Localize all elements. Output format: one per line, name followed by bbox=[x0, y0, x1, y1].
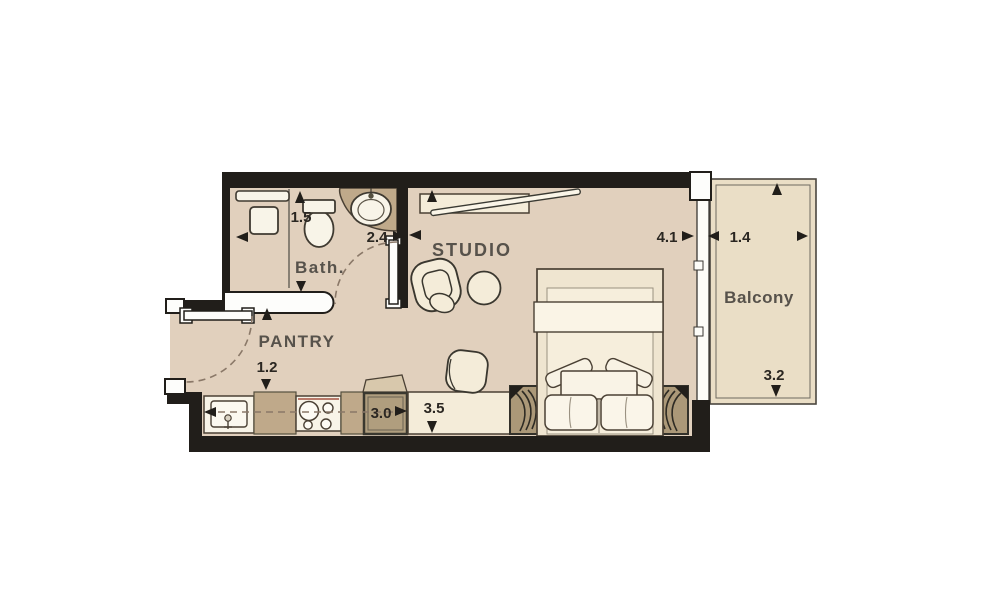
dim-label-bath-width: 2.4 bbox=[367, 229, 389, 246]
floor-plan-page: STUDIO Bath. PANTRY Balcony 1.5 2.4 4.1 … bbox=[0, 0, 1000, 612]
stool bbox=[445, 349, 490, 395]
dim-label-bath-depth: 1.5 bbox=[291, 209, 312, 226]
balcony-post-wall bbox=[692, 400, 710, 452]
top-wall bbox=[222, 172, 691, 188]
burner-icon bbox=[304, 421, 312, 429]
nightstand-left bbox=[510, 386, 539, 434]
bottom-wall bbox=[189, 436, 710, 452]
window-wall bbox=[697, 200, 709, 403]
dim-label-balcony-width: 1.4 bbox=[730, 229, 752, 246]
floor-plan-svg: STUDIO Bath. PANTRY Balcony 1.5 2.4 4.1 … bbox=[0, 0, 1000, 612]
shower-bar bbox=[236, 191, 289, 201]
shower-head-icon bbox=[250, 207, 278, 234]
bath-south-wall bbox=[224, 292, 334, 313]
dim-label-studio-depth: 3.5 bbox=[424, 400, 445, 417]
kitchen-sink-basin bbox=[211, 401, 247, 427]
side-table bbox=[468, 272, 501, 305]
burner-icon bbox=[300, 402, 319, 421]
room-label-bath: Bath. bbox=[295, 258, 345, 277]
wall-end-cap bbox=[690, 172, 711, 200]
dim-label-entry-width: 1.2 bbox=[257, 359, 278, 376]
left-wall bbox=[222, 172, 230, 303]
entry-door-leaf bbox=[184, 311, 252, 320]
room-label-studio: STUDIO bbox=[432, 240, 512, 260]
dim-label-studio-width: 4.1 bbox=[657, 229, 678, 246]
room-label-pantry: PANTRY bbox=[259, 332, 336, 351]
pillow bbox=[545, 395, 597, 430]
room-label-balcony: Balcony bbox=[724, 288, 794, 307]
wall-end-cap bbox=[165, 379, 185, 394]
dim-label-kitchen-run: 3.0 bbox=[371, 405, 392, 422]
window-mullion bbox=[694, 261, 703, 270]
counter-segment bbox=[341, 392, 364, 434]
bath-door-leaf bbox=[389, 240, 398, 304]
bed bbox=[534, 269, 663, 436]
bed-fold-band bbox=[534, 302, 663, 332]
window-mullion bbox=[694, 327, 703, 336]
dim-label-balcony-depth: 3.2 bbox=[764, 367, 785, 384]
stool-seat bbox=[445, 349, 490, 395]
vanity-faucet-icon bbox=[368, 193, 373, 198]
kitchen-faucet-icon bbox=[225, 415, 231, 421]
burner-icon bbox=[321, 419, 331, 429]
pillow bbox=[601, 395, 653, 430]
counter-segment bbox=[254, 392, 296, 434]
